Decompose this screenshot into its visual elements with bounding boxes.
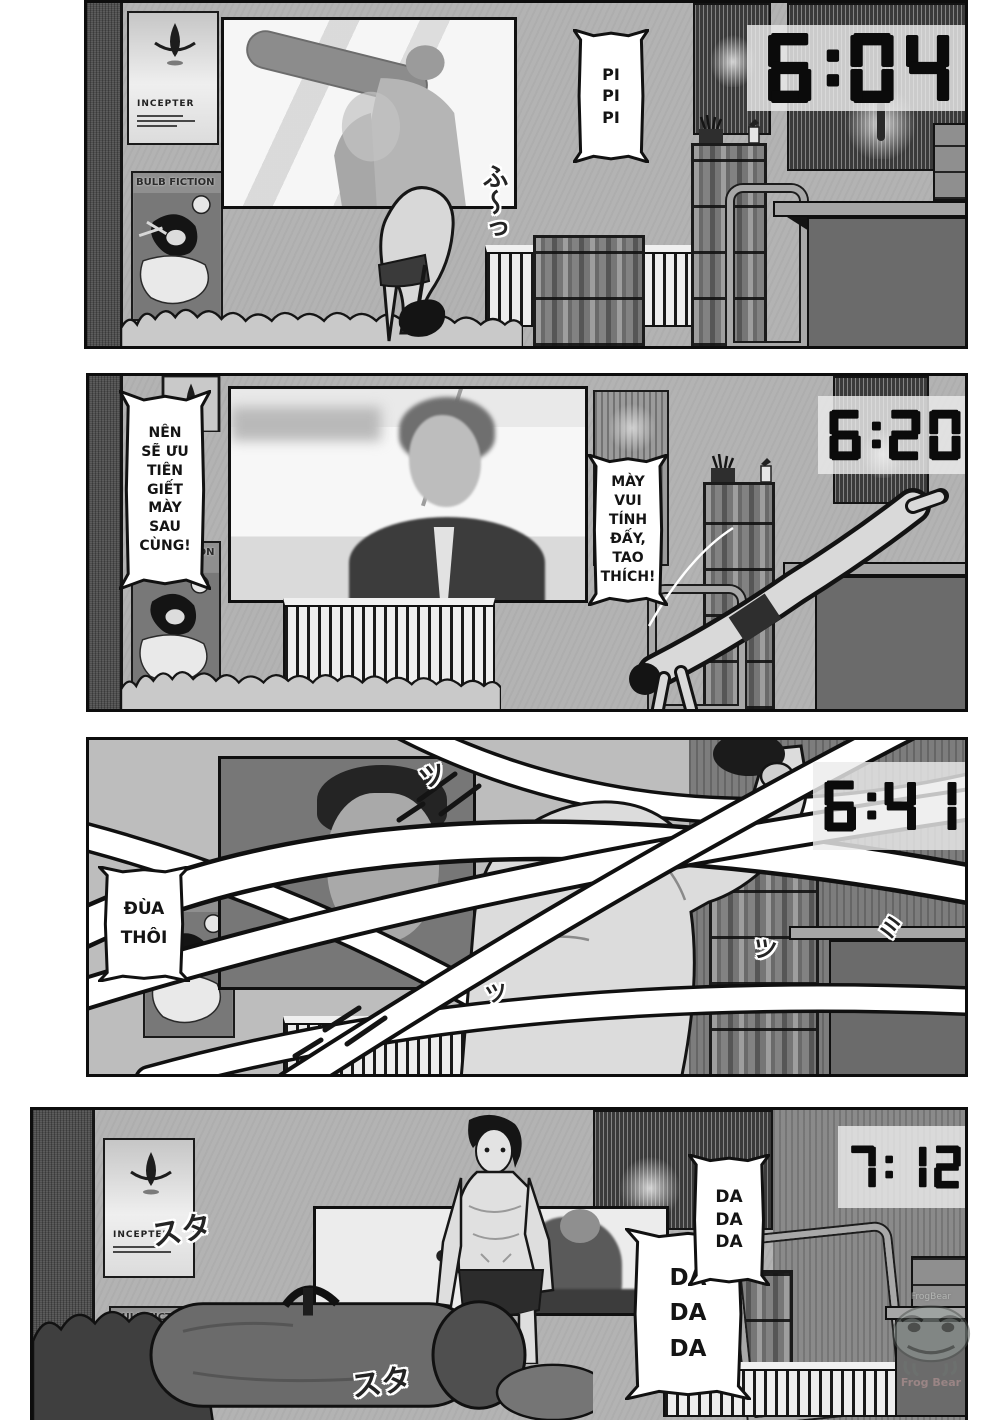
bubble-line: MÀY	[611, 473, 645, 492]
panel-1: INCEPTER BULB FICTION	[84, 0, 968, 349]
panel-3: BULB FICTION	[86, 737, 968, 1077]
bubble-line: TÍNH	[609, 511, 647, 530]
desk-drawers	[933, 123, 968, 201]
bubble-line: PI	[602, 64, 620, 86]
bubble-line: VUI	[614, 492, 641, 511]
bubble-line: SAU	[149, 518, 181, 537]
step-sfx: スタ	[148, 1201, 215, 1255]
bubble-line: DA	[670, 1334, 707, 1365]
bubble-line: ĐÙA	[124, 898, 165, 921]
bubble-line: GIẾT	[147, 481, 183, 500]
frog-bear-watermark: FrogBear Frog Bear	[862, 1292, 1000, 1420]
bubble-line: ĐẤY,	[610, 530, 646, 549]
digital-clock	[838, 1126, 968, 1208]
desk-top	[773, 201, 968, 217]
stretching-figure	[327, 143, 487, 343]
poster-credit-bar	[137, 120, 195, 122]
digital-clock	[813, 762, 968, 850]
bulb-fiction-title: BULB FICTION	[136, 177, 215, 188]
wall-corner-strip	[87, 3, 123, 346]
bubble-line: TAO	[612, 549, 643, 568]
poster-credit-bar	[137, 115, 183, 117]
bubble-line: DA	[715, 1231, 742, 1254]
frog-bear-icon	[876, 1302, 986, 1376]
step-sfx: スタ	[348, 1354, 414, 1406]
digital-clock	[818, 396, 968, 474]
breath-sfx: ふ〜っ	[475, 163, 512, 293]
panel-2: BULB FICTION	[86, 373, 968, 712]
speech-bubble-threat: NÊN SẼ ƯU TIÊN GIẾT MÀY SAU CÙNG!	[119, 390, 211, 590]
watermark-text-top: FrogBear	[862, 1292, 1000, 1302]
watermark-text-bottom: Frog Bear	[862, 1376, 1000, 1389]
bubble-line: CÙNG!	[139, 537, 190, 556]
incepter-poster: INCEPTER	[127, 11, 219, 145]
speech-bubble-da-small: DA DA DA	[688, 1154, 770, 1286]
digital-clock	[747, 25, 968, 111]
bubble-line: DA	[715, 1186, 742, 1209]
desk-body	[807, 217, 968, 349]
incepter-title: INCEPTER	[137, 99, 194, 109]
speech-bubble-reply: MÀY VUI TÍNH ĐẤY, TAO THÍCH!	[588, 454, 668, 606]
small-bookshelf	[533, 235, 645, 349]
poster-credit-bar	[113, 1246, 159, 1248]
bubble-line: DA	[670, 1298, 707, 1329]
poster-credit-bar	[137, 125, 177, 127]
spinning-top-icon	[121, 1148, 181, 1208]
bubble-line: NÊN	[149, 424, 182, 443]
bubble-line: THÍCH!	[601, 568, 656, 587]
panel-4: INCEPTER BULB FICTION	[30, 1107, 968, 1420]
speech-bubble-pi: PI PI PI	[573, 29, 649, 163]
bubble-line: THÔI	[121, 927, 168, 950]
spinning-top-icon	[145, 19, 205, 79]
speech-bubble-joke: ĐÙA THÔI	[98, 866, 190, 982]
bubble-line: MÀY	[148, 499, 182, 518]
plant-and-spray	[693, 115, 773, 145]
bubble-line: DA	[715, 1209, 742, 1232]
bubble-line: PI	[602, 107, 620, 129]
bed-and-gym-bag	[33, 1282, 593, 1420]
page: INCEPTER BULB FICTION	[0, 0, 1000, 1420]
bubble-line: TIÊN	[147, 462, 183, 481]
bubble-line: SẼ ƯU	[141, 443, 189, 462]
bubble-line: PI	[602, 85, 620, 107]
